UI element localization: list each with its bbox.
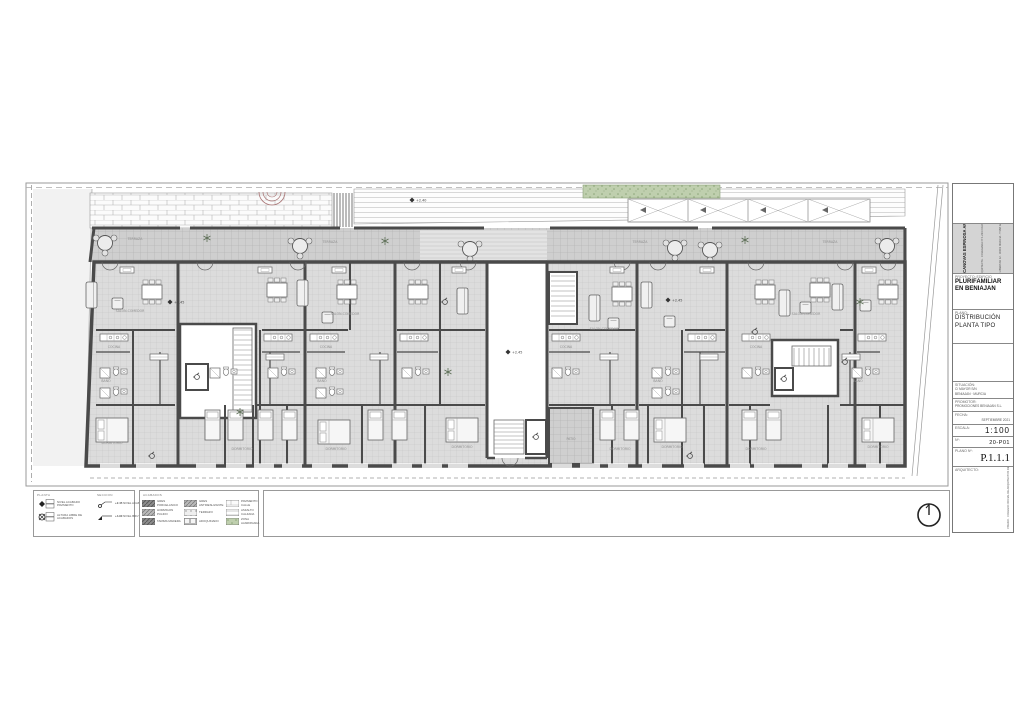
- svg-text:DORMITORIO: DORMITORIO: [452, 445, 473, 449]
- legend-levels: PLANTA NIVEL ACABADO PAVIMENTO ALTURA LI…: [33, 490, 135, 537]
- svg-text:SALON-COMEDOR: SALON-COMEDOR: [116, 309, 145, 313]
- project-title: PLURIFAMILIAR: [955, 279, 1001, 285]
- project-title-field: PROYECTO: EDIFICIO PLURIFAMILIAR EN BENI…: [953, 274, 1013, 310]
- plano-num-field: PLANO Nº: P.1.1.1: [953, 448, 1013, 467]
- floor-plan-drawing: +2.45 +2.45 +2.45 +2.40 SALON-COMEDOR SA…: [0, 0, 1024, 723]
- svg-text:DORMITORIO: DORMITORIO: [868, 445, 889, 449]
- level-marker-icon: [37, 499, 55, 509]
- crosswalk: [334, 193, 352, 227]
- svg-text:BAÑO: BAÑO: [853, 378, 863, 383]
- finishes-col-1: GRES PORCELANICO HORMIGON PULIDO TARIMA …: [142, 500, 181, 527]
- finishes-col-2: GRES ANTIDESLIZANTE TERRAZO ADOQUINADO: [184, 500, 223, 527]
- svg-text:+2.45: +2.45: [512, 351, 522, 355]
- svg-text:TERRAZA: TERRAZA: [127, 237, 144, 241]
- svg-text:DORMITORIO: DORMITORIO: [662, 445, 683, 449]
- svg-text:COCINA: COCINA: [320, 345, 333, 349]
- fecha-field: FECHA: SEPTIEMBRE 2021: [953, 412, 1013, 425]
- architect-name: BARBARA CANOVAS ESPINOSA ARQUITECTO: [963, 224, 968, 274]
- svg-text:BAÑO: BAÑO: [653, 378, 663, 383]
- sheet-title: DISTRIBUCIÓN: [955, 315, 1000, 321]
- num-field: Nº: 20-P01: [953, 437, 1013, 448]
- architect-band: BARBARA CANOVAS ESPINOSA ARQUITECTO ARQU…: [953, 224, 1013, 274]
- title-block: BARBARA CANOVAS ESPINOSA ARQUITECTO ARQU…: [952, 183, 1014, 533]
- height-marker-icon: [37, 512, 55, 522]
- project-title: EN BENIAJAN: [955, 286, 996, 292]
- plano-num-value: P.1.1.1: [980, 452, 1010, 465]
- svg-text:TERRAZA: TERRAZA: [632, 240, 649, 244]
- planter-strip: [583, 185, 720, 198]
- deck-area: [420, 230, 547, 260]
- svg-text:BAÑO: BAÑO: [101, 378, 111, 383]
- num-value: 20-P01: [989, 440, 1010, 446]
- gross-level-icon: [97, 512, 113, 522]
- architect-contact: ARQUITECTA · COLEGIADA Nº 1.234 COAMU: [982, 224, 985, 274]
- sheet-title-field: PLANO: DISTRIBUCIÓN PLANTA TIPO: [953, 310, 1013, 344]
- svg-text:DORMITORIO: DORMITORIO: [746, 447, 767, 451]
- north-arrow-icon: [915, 498, 943, 530]
- escala-field: ESCALA: 1:100: [953, 425, 1013, 437]
- drawing-sheet: +2.45 +2.45 +2.45 +2.40 SALON-COMEDOR SA…: [0, 0, 1024, 723]
- architect-contact: AVDA. LIBERTAD 12 · 30001 MURCIA · T 968…: [1000, 224, 1003, 274]
- svg-text:TERRAZA: TERRAZA: [322, 240, 339, 244]
- svg-text:COCINA: COCINA: [108, 345, 121, 349]
- svg-text:SALON-COMEDOR: SALON-COMEDOR: [590, 327, 619, 331]
- legend-item: NIVEL ACABADO PAVIMENTO: [37, 499, 91, 509]
- legend-item: ALTURA LIBRE DE ACABADOS: [37, 512, 91, 522]
- legend-finishes: ACABADOS GRES PORCELANICO HORMIGON PULID…: [139, 490, 259, 537]
- fecha-value: SEPTIEMBRE 2021: [981, 419, 1010, 423]
- svg-text:DORMITORIO: DORMITORIO: [326, 447, 347, 451]
- section-level-icon: [97, 499, 113, 509]
- sheet-title: PLANTA TIPO: [955, 323, 995, 329]
- title-block-spacer: [953, 344, 1013, 382]
- legend-col-planta: PLANTA NIVEL ACABADO PAVIMENTO ALTURA LI…: [34, 491, 94, 536]
- escala-value: 1:100: [985, 426, 1010, 435]
- svg-text:TERRAZA: TERRAZA: [822, 240, 839, 244]
- elevator-right: [775, 368, 793, 390]
- svg-text:+2.45: +2.45: [174, 301, 184, 305]
- legend-bar: [263, 490, 950, 537]
- svg-text:BAÑO: BAÑO: [317, 378, 327, 383]
- firma-field: ARQUITECTO: VISADO · COLEGIO OFICIAL DE …: [953, 467, 1013, 533]
- svg-text:COCINA: COCINA: [750, 345, 763, 349]
- svg-text:SALON-COMEDOR: SALON-COMEDOR: [331, 312, 360, 316]
- promotor-field: PROMOTOR: PROMOCIONES BENIAJAN S.L.: [953, 399, 1013, 412]
- elevator-left: [186, 364, 208, 390]
- title-block-blank-field: [953, 184, 1013, 224]
- svg-text:DORMITORIO: DORMITORIO: [610, 447, 631, 451]
- situacion-field: SITUACIÓN: C/ MAYOR S/N BENIAJAN · MURCI…: [953, 382, 1013, 399]
- svg-text:DORMITORIO: DORMITORIO: [232, 447, 253, 451]
- svg-text:+2.40: +2.40: [416, 199, 426, 203]
- finishes-col-3: PAVIMENTO CALLE ASFALTO CALZADA ZONA AJA…: [226, 500, 265, 527]
- parking-row: [628, 199, 870, 222]
- visado-text: VISADO · COLEGIO OFICIAL DE ARQUITECTOS …: [1008, 471, 1011, 529]
- svg-text:PATIO: PATIO: [566, 437, 576, 441]
- svg-text:DORMITORIO: DORMITORIO: [102, 441, 123, 445]
- svg-text:COCINA: COCINA: [560, 345, 573, 349]
- terrace-band: [90, 228, 905, 263]
- svg-text:SALON-COMEDOR: SALON-COMEDOR: [792, 312, 821, 316]
- patio: [549, 408, 593, 464]
- svg-text:+2.45: +2.45: [672, 299, 682, 303]
